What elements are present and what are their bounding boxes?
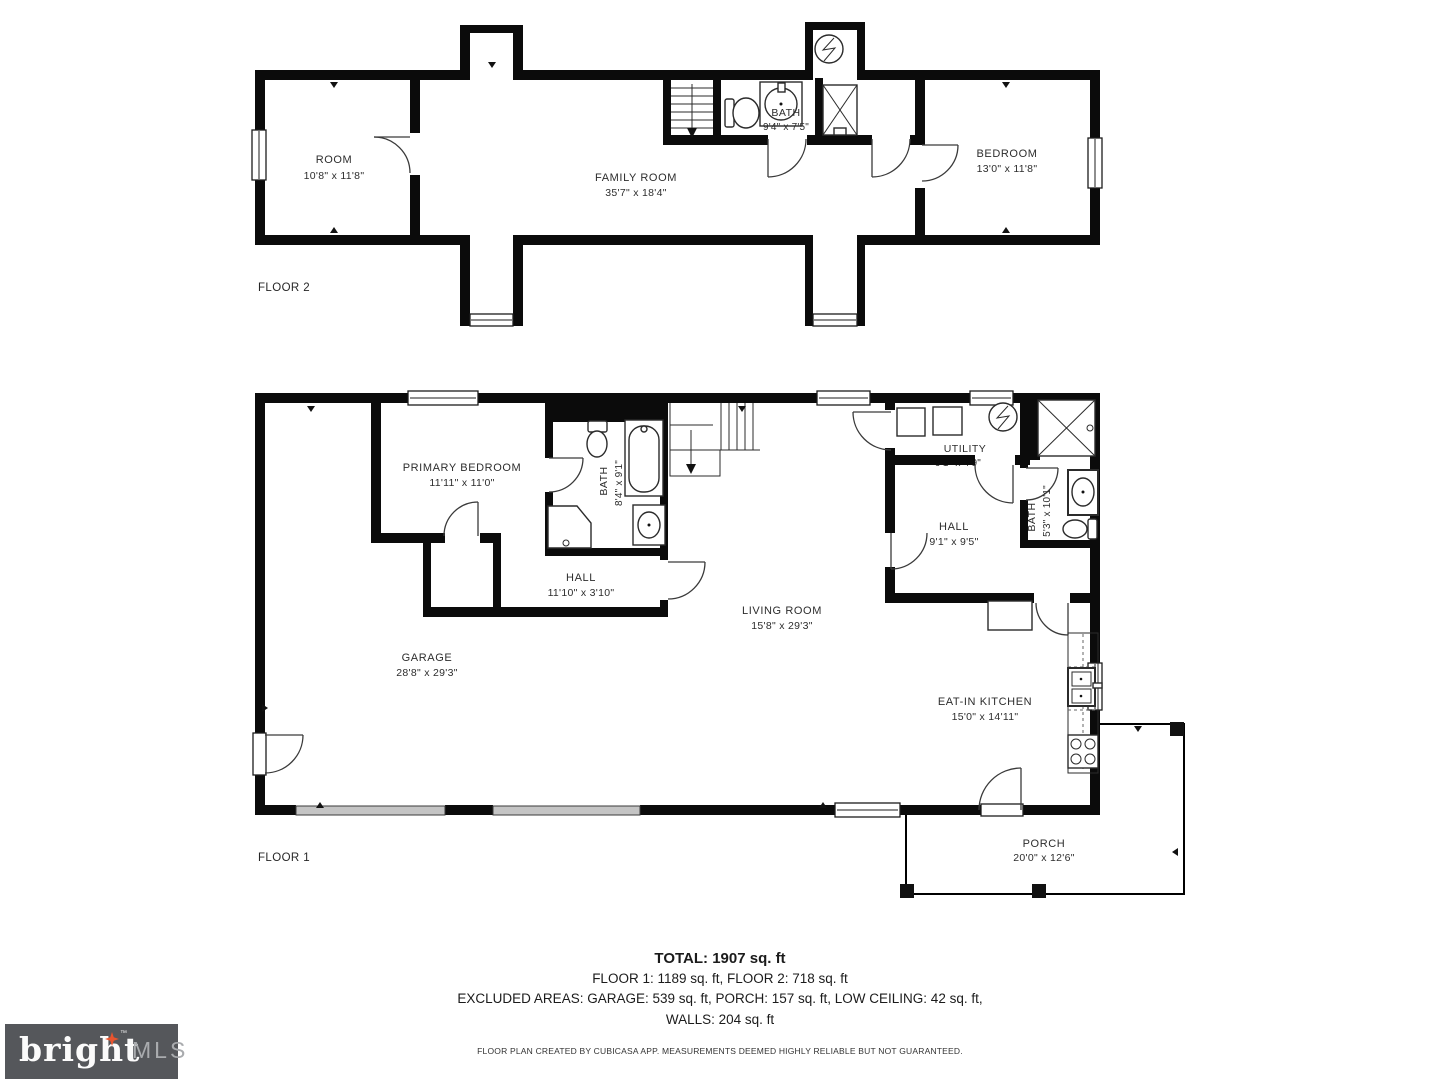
floor1-title: FLOOR 1 <box>258 852 310 864</box>
utility-label: UTILITY <box>944 443 987 455</box>
porch-post <box>1032 884 1046 898</box>
floor1-kitchen-fixtures <box>988 601 1102 773</box>
living-room-label: LIVING ROOM <box>742 605 822 617</box>
washer-icon <box>897 408 925 436</box>
faucet-icon <box>641 426 647 432</box>
garage-door <box>493 806 640 815</box>
hall2-dims: 9'1" x 9'5" <box>929 536 978 548</box>
floor1-utility-fixtures <box>897 403 1017 436</box>
floor2-bath-fixtures <box>725 35 857 135</box>
floor2-windows <box>252 130 1102 326</box>
family-room-label: FAMILY ROOM <box>595 172 677 184</box>
bath1-dims: 8'4" x 9'1" <box>614 460 625 506</box>
living-room-dims: 15'8" x 29'3" <box>751 620 813 632</box>
hall-label: HALL <box>566 572 596 584</box>
floor2-title: FLOOR 2 <box>258 282 310 294</box>
bedroom-label: BEDROOM <box>976 148 1037 160</box>
bath2f-dims: 9'4" x 7'5" <box>763 122 809 133</box>
primary-bedroom-dims: 11'11" x 11'0" <box>429 477 494 489</box>
floorplan-drawing: ROOM 10'8" x 11'8" FAMILY ROOM 35'7" x 1… <box>0 0 1440 940</box>
summary-disclaimer: FLOOR PLAN CREATED BY CUBICASA APP. MEAS… <box>0 1046 1440 1056</box>
porch-label: PORCH <box>1023 838 1066 850</box>
bath1-label: BATH <box>598 466 610 495</box>
porch-post <box>1170 722 1184 736</box>
room-dims: 10'8" x 11'8" <box>304 170 365 182</box>
stairs-down-arrow-icon <box>686 464 696 474</box>
porch-post <box>900 884 914 898</box>
eat-in-kitchen-label: EAT-IN KITCHEN <box>938 696 1032 708</box>
hall2-label: HALL <box>939 521 969 533</box>
logo-tm: ™ <box>120 1030 127 1037</box>
bath2-label: BATH <box>1026 502 1038 531</box>
floor2-plan: ROOM 10'8" x 11'8" FAMILY ROOM 35'7" x 1… <box>252 22 1102 326</box>
garage-dims: 28'8" x 29'3" <box>396 667 458 679</box>
garage-label: GARAGE <box>402 652 453 664</box>
bedroom-dims: 13'0" x 11'8" <box>977 163 1038 175</box>
faucet-icon <box>1093 683 1102 688</box>
porch-dims: 20'0" x 12'6" <box>1013 852 1075 864</box>
floor2-walls <box>255 22 1100 326</box>
cabinet-icon <box>988 601 1032 630</box>
floorplan-page: ROOM 10'8" x 11'8" FAMILY ROOM 35'7" x 1… <box>0 0 1440 1080</box>
toilet-bowl-icon <box>733 98 759 128</box>
floor1-stairs <box>670 403 760 476</box>
summary-floors: FLOOR 1: 1189 sq. ft, FLOOR 2: 718 sq. f… <box>0 971 1440 986</box>
bath2f-label: BATH <box>771 107 800 119</box>
toilet-icon <box>1088 519 1097 539</box>
room-label: ROOM <box>316 154 353 166</box>
hall-dims: 11'10" x 3'10" <box>548 587 615 599</box>
summary-excluded: EXCLUDED AREAS: GARAGE: 539 sq. ft, PORC… <box>0 991 1440 1006</box>
porch-door-frame <box>981 804 1023 816</box>
primary-bedroom-label: PRIMARY BEDROOM <box>403 462 522 474</box>
bath2-dims: 5'3" x 10'1" <box>1042 485 1053 537</box>
logo-suffix-text: MLS <box>132 1037 188 1064</box>
family-room-dims: 35'7" x 18'4" <box>605 187 667 199</box>
floor1-walls <box>255 393 1100 815</box>
star-icon <box>105 1032 119 1046</box>
summary-walls: WALLS: 204 sq. ft <box>0 1012 1440 1027</box>
faucet-icon <box>778 83 785 92</box>
dryer-icon <box>933 407 962 435</box>
bright-mls-logo: bright ™ MLS <box>5 1024 178 1079</box>
eat-in-kitchen-dims: 15'0" x 14'11" <box>952 711 1019 723</box>
corner-shower-icon <box>548 506 591 548</box>
summary-total: TOTAL: 1907 sq. ft <box>0 950 1440 967</box>
floor1-plan: 9'1" x 4'9" <box>253 391 1184 898</box>
floor2-stairs <box>671 84 713 138</box>
shower-drain-icon <box>834 128 846 135</box>
entry-door-frame <box>253 733 266 775</box>
